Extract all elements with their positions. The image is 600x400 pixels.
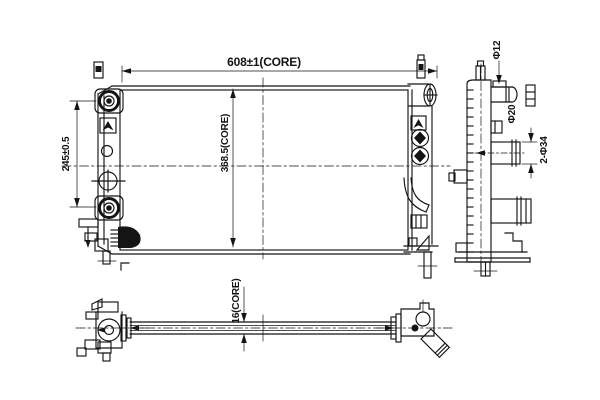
pipe-mid-label: Φ20	[507, 104, 518, 123]
small-hole	[102, 146, 113, 157]
top-right-pin	[417, 55, 425, 78]
fin-ticks	[467, 90, 473, 252]
dim-pipe-small: Φ12	[492, 40, 503, 84]
side-left-bracket	[449, 170, 467, 183]
pipe-lower	[491, 197, 531, 225]
bottom-left-fitting	[77, 299, 131, 361]
upper-port	[95, 89, 123, 113]
side-base	[455, 233, 530, 276]
port-spacing-label: 245±0.5	[61, 136, 72, 171]
right-tank	[404, 55, 438, 278]
lower-left-bracket	[79, 219, 141, 270]
section-mark	[526, 85, 535, 106]
core-width-label: 608±1(CORE)	[227, 55, 301, 69]
radiator-technical-drawing: 608±1(CORE) 368.5(CORE) 245±0.5	[0, 0, 600, 400]
bottom-right-fitting	[391, 300, 449, 357]
dim-core-width: 608±1(CORE)	[122, 55, 437, 82]
lower-right-bracket	[404, 236, 438, 278]
front-view: 608±1(CORE) 368.5(CORE) 245±0.5	[61, 55, 450, 278]
angled-outlet	[421, 329, 449, 357]
top-left-pin	[94, 62, 103, 78]
dim-port-spacing: 245±0.5	[61, 101, 96, 207]
drain-cock-blob	[118, 226, 141, 248]
bottom-right-pin	[424, 252, 431, 278]
right-port-lower	[412, 148, 429, 165]
core-height-label: 368.5(CORE)	[220, 114, 231, 172]
bleed-valve	[100, 118, 116, 133]
pipes-pair-label: 2-Φ34	[539, 136, 550, 164]
bottom-view: 16(CORE)	[76, 278, 452, 361]
dim-pipes-pair: 2-Φ34	[522, 128, 550, 178]
core-thickness-label: 16(CORE)	[231, 278, 242, 323]
pipe-upper	[475, 140, 524, 166]
side-view: Φ12 Φ20	[449, 40, 550, 276]
bottom-left-pin	[103, 251, 110, 264]
dim-core-thickness: 16(CORE)	[231, 278, 247, 351]
right-port-upper	[412, 130, 429, 147]
mid-stub	[491, 121, 502, 133]
core	[98, 86, 410, 254]
lower-fitting	[411, 215, 427, 228]
bleed-stub	[476, 61, 485, 80]
top-fitting	[491, 81, 535, 106]
dim-core-height: 368.5(CORE)	[220, 89, 236, 247]
right-bleed-valve	[411, 116, 426, 130]
lower-port	[95, 196, 123, 220]
drawing-canvas: 608±1(CORE) 368.5(CORE) 245±0.5	[0, 0, 600, 400]
pipe-small-label: Φ12	[492, 40, 503, 59]
